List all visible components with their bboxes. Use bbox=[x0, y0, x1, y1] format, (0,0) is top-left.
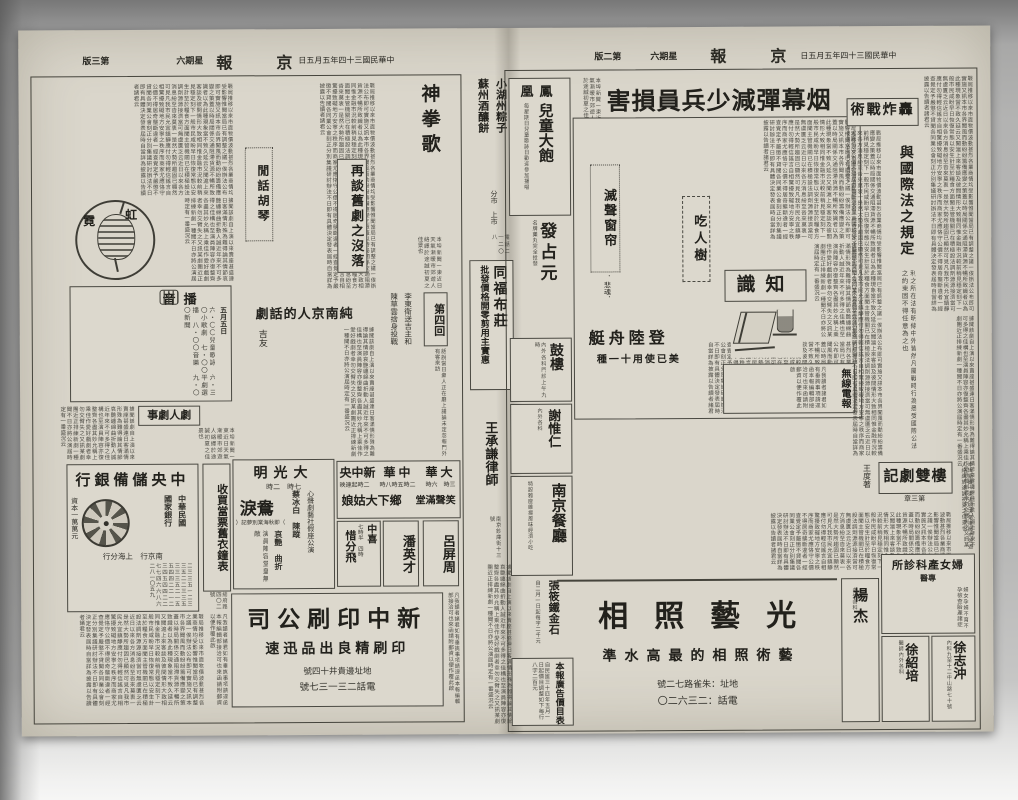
daguangming-names: 蔡冰白 陳蹤 bbox=[290, 490, 302, 582]
printing-phone: 號七三一三二話電 bbox=[233, 678, 443, 693]
clinic-note: 婦女孕婦不育不孕檢查胎產諸症 bbox=[886, 587, 968, 629]
xuzhichong-note: 內科九至十二中山路七十號 bbox=[935, 640, 951, 716]
restaurant-note: 特設雅座維揚風味經濟小吃 bbox=[515, 481, 533, 571]
phoenix-note: 每星期日兒童歌詠日歡迎參加播唱 bbox=[513, 103, 530, 209]
cinema-film-title: 娘姑大下鄉 bbox=[342, 492, 402, 509]
broadcast-items: 六・〇〇兒童歌詠 六・三〇小歌劇 七・〇〇平劇選播 八・〇〇音樂 九・〇〇新聞 bbox=[75, 307, 215, 398]
column-title-juren-jushi: 事劇人劇 bbox=[138, 406, 200, 426]
phoenix-title: 凰鳳 bbox=[509, 81, 569, 100]
body-text: 凡我讀者諸君如有垂詢事項請逕函本報編輯部接洽可也來函請附郵資以便作覆此啟 bbox=[445, 592, 460, 704]
wireless-text: 凡我讀者諸君如有垂詢事項請逕函本報編輯部接洽可也來函請附郵資以便作覆此啟 bbox=[726, 366, 826, 409]
logo-char-ni: 霓 bbox=[83, 212, 95, 229]
xushaopei-name: 徐紹培 bbox=[901, 643, 920, 682]
article-title-bombing-tactics: 術戰炸轟 bbox=[847, 98, 919, 126]
zongzi-note: 分市 上市 bbox=[489, 190, 499, 225]
article-title-silencer-curtain: 滅聲窗帘 bbox=[590, 164, 621, 272]
lead-article-box: 戰局推移以來市面物價波動甚烈各業商情均受影響惟聞當局已有調整之議一俟辦法公布即可… bbox=[573, 116, 863, 420]
wireless-telegraph-box: 無線電報 凡我讀者諸君如有垂詢事項請逕函本報編輯部接洽可也來函請附郵資以便作覆此… bbox=[723, 363, 855, 414]
body-text: 本埠新聞一束近日天氣漸暖市郊遊人絡繹於途誠初夏之佳景也 bbox=[954, 462, 972, 550]
rainbow-column-logo: 虹 霓 bbox=[71, 198, 161, 282]
classified-ads-text: 凡我讀者諸君如有垂詢事項請逕函本報編輯部接洽可也來函請附郵資以便作覆此啟 bbox=[207, 613, 227, 705]
cinema-tagline: 堂滿聲笑 bbox=[416, 491, 456, 506]
xieweiren-title: 謝惟仁 bbox=[544, 409, 563, 448]
rate-card-note: 自民國三十四年五月一日起價目調整如下每行八字二百元 bbox=[515, 662, 549, 720]
masthead-title-right: 報 京 bbox=[710, 42, 800, 66]
body-text: 據聞該劇自上演以來賣座甚盛連日客滿情形殊為難得論其情節哀艷纏綿曲折動人誠近年來不… bbox=[165, 197, 233, 281]
bank-branches: 行分海上 行京南 bbox=[68, 551, 198, 563]
photo-studio-subtitle: 準水高最的相照術藝 bbox=[557, 644, 837, 665]
book-icon bbox=[733, 312, 777, 344]
cinema-1-times: 時六 時三 bbox=[425, 479, 455, 488]
serial-chapter: 第四回 bbox=[424, 292, 448, 346]
body-text: 戰局推移以來市面物價波動甚烈各業商情均受影響惟聞當局已有調整之議一俟辦法公布即可… bbox=[920, 76, 973, 312]
silencer-byline: ．悲魂． bbox=[596, 274, 612, 314]
serial-text: 話說當日衆人正在廳上議論未定忽報門外有客來訪 bbox=[378, 348, 447, 456]
seal-note: 自二月一日起每字二千元 bbox=[514, 580, 540, 652]
ad-womens-clinic: 所診科產女婦 醫專 婦女孕婦不育不孕檢查胎產諸症 bbox=[881, 554, 975, 634]
printing-title: 司公刷印中新 bbox=[232, 599, 442, 634]
page-left: 版三第 六期星 報 京 日五月五年四十三國民華中 神拳歌 本埠新聞一束近日天氣漸… bbox=[30, 48, 466, 726]
edition-right: 版二第 bbox=[594, 49, 621, 62]
daguangming-times: 時二 時七 bbox=[234, 482, 334, 493]
gulou-note: 內外各科門診上午九時 bbox=[514, 342, 546, 398]
article-title-maneating-tree: 吃人樹 bbox=[682, 196, 710, 282]
logo-char-hong: 虹 bbox=[125, 206, 137, 223]
column-title-knowledge: 識知 bbox=[724, 269, 806, 301]
clinic-sub: 醫專 bbox=[882, 573, 974, 584]
gossip-text: 據聞該劇自上演以來賣座甚盛連日客滿情形殊為難得論其情節哀艷纏綿曲折動人誠近年來不… bbox=[44, 406, 134, 460]
article-title-shenquange: 神拳歌 bbox=[376, 83, 443, 234]
edition-left: 版三第 bbox=[82, 54, 109, 67]
serial-title: 記劇雙樓瓊 bbox=[878, 462, 952, 494]
cinema-1-name: 華大 bbox=[425, 463, 455, 480]
bank-emblem bbox=[82, 499, 130, 547]
ad-daguangming-cinema: 明光大 時二 時七 心聲劇藝社假座公演 蔡冰白 陳蹤 淚鴦鴛 ）記夢別棠海秋即（… bbox=[232, 459, 335, 590]
newspaper-spread: 版三第 六期星 報 京 日五月五年四十三國民華中 神拳歌 本埠新聞一束近日天氣漸… bbox=[18, 25, 994, 736]
bank-line2: 國家銀行 bbox=[163, 495, 174, 527]
daguangming-film: 淚鴦鴛 bbox=[240, 494, 288, 516]
ad-lvpingzhou: 呂屏周 bbox=[423, 520, 459, 586]
weekday-right: 六期星 bbox=[650, 49, 677, 62]
serial-author: 王度著 bbox=[858, 464, 872, 504]
ad-pawn-tickets: 收買當票舊衣鐘表 bbox=[202, 463, 231, 591]
zongzi-phone: 電話二一二〇八 bbox=[471, 234, 509, 254]
ad-xushaopei: 徐紹培 醫師內外各科 bbox=[881, 636, 929, 722]
ad-phoenix-children: 凰鳳 兒童大飽 每星期日兒童歌詠日歡迎參加播唱 bbox=[508, 78, 571, 216]
page-right: 版二第 六期星 報 京 日五月五年四十三國民華中 凰鳳 兒童大飽 每星期日兒童歌… bbox=[504, 42, 982, 736]
zhongxi-name: 中喜 bbox=[363, 524, 378, 544]
pen-line bbox=[735, 346, 775, 350]
gutter-classifieds: 據聞該劇自上演以來賣座甚盛連日客滿情形殊為難得論其情節哀艷纏綿曲折動人誠近年來不… bbox=[473, 564, 512, 724]
weekday-left: 六期星 bbox=[176, 54, 203, 67]
yangjie-note: 內外各科 bbox=[845, 587, 858, 713]
scanner-bed: 版三第 六期星 報 京 日五月五年四十三國民華中 神拳歌 本埠新聞一束近日天氣漸… bbox=[0, 0, 1018, 800]
bombing-article-text-spaced: 利之所在法有明條中外皆然凡屬戰時行為悉受國際公法之約束固不得任意為之也 bbox=[885, 270, 916, 456]
ad-panyingcai: 潘英才 bbox=[383, 520, 419, 586]
ad-guangyi-photo: 相照藝光 準水高最的相照術藝 號二七路雀朱：址地 〇二六三二：話電 bbox=[557, 578, 838, 723]
zongzi-line2: 蘇州酒釀餅 bbox=[474, 78, 490, 133]
article-title-landing-craft: 艇舟陸登 bbox=[589, 324, 709, 349]
phoenix-big-text: 兒童大飽 bbox=[535, 103, 556, 163]
bombing-article-text: 戰局推移以來市面物價波動甚烈各業商情均受影響惟聞當局已有調整之議一俟辦法公布即可… bbox=[847, 130, 883, 456]
cinema-3-times: 映連起時二 bbox=[340, 480, 370, 489]
gulou-title: 鼓樓 bbox=[545, 343, 565, 371]
broadcast-date: 五月五日 bbox=[219, 306, 229, 334]
serial-chapter-right: 章三第 bbox=[879, 494, 951, 506]
photo-studio-title: 相照藝光 bbox=[557, 590, 837, 635]
bank-line1: 中華民國 bbox=[177, 495, 188, 527]
daguangming-tags: 哀艷 曲折 bbox=[272, 530, 284, 582]
fazhanyuan-title: 發占元 bbox=[534, 222, 559, 285]
saucer-line bbox=[773, 333, 797, 335]
article-title-jiutan-jiuju: 再談舊劇之沒落 bbox=[337, 159, 368, 273]
bank-capital: 資本一萬萬元 bbox=[70, 497, 80, 539]
ad-zhongxi-cinema: 中喜 七時半 四時 惜分飛 bbox=[337, 521, 381, 587]
ad-yangjie: 楊杰 內外各科 bbox=[841, 578, 880, 722]
ad-fazhanyuan: 發占元 名牌藥丸完全批發 bbox=[509, 218, 570, 334]
bank-title: 行銀備儲央中 bbox=[67, 469, 197, 491]
article-title-xianhua-huqin: 閒話胡琴 bbox=[245, 147, 273, 241]
pawn-address: 總府路四〇二號 bbox=[205, 591, 227, 609]
photo-studio-address: 號二七路雀朱：址地 bbox=[558, 676, 838, 690]
zhongxi-film: 惜分飛 bbox=[342, 530, 358, 563]
classified-ads-text: 戰局推移以來市面物價波動甚烈各業商情均受影響惟聞當局已有調整之議一俟辦法公布即可… bbox=[69, 614, 203, 707]
masthead-title-left: 報 京 bbox=[216, 49, 306, 73]
daguangming-troupe: 心聲劇藝社假座公演 bbox=[304, 490, 316, 582]
article-title-nanjing-drama: 劇話的人京南純 bbox=[256, 303, 376, 324]
daguangming-title: 明光大 bbox=[233, 462, 333, 483]
daguangming-alt-title: ）記夢別棠海秋即（ bbox=[236, 518, 288, 528]
lawyer-address: 南京鈔庫街十三號 bbox=[477, 516, 501, 558]
tongfu-lines: 批發價格開零剪用主實惠 bbox=[473, 265, 490, 364]
printing-subtitle: 速迅品出良精刷印 bbox=[232, 637, 442, 658]
daguangming-cast: 演員陣容堂皇無敵 bbox=[240, 530, 268, 584]
ad-lawyer-wang: 王承謙律師 bbox=[476, 394, 501, 512]
ad-cinema-listings: 華大 時六 時三 華中 時八時五時二 央中新 映連起時二 堂滿聲笑 娘姑大下鄉 bbox=[336, 460, 460, 519]
radio-icon bbox=[160, 290, 179, 305]
gossip-text: 本埠新聞一束近日天氣漸暖市郊遊人絡繹於途誠初夏之佳景也 bbox=[138, 427, 234, 460]
cinema-2-times: 時八時五時二 bbox=[379, 479, 415, 488]
date-right: 日五月五年四十三國民華中 bbox=[800, 50, 896, 62]
cinema-3-name: 央中新 bbox=[339, 464, 375, 481]
knowledge-illustration bbox=[731, 303, 803, 357]
drama-byline: 吉友 bbox=[256, 329, 270, 363]
broadcast-schedule-box: 音播 五月五日 六・〇〇兒童歌詠 六・三〇小歌劇 七・〇〇平劇選播 八・〇〇音樂… bbox=[69, 285, 232, 402]
body-text: 據聞該劇自上演以來賣座甚盛連日客滿情形殊為難得論其情節哀艷纏綿曲折動人誠近年來不… bbox=[272, 327, 375, 458]
ad-central-reserve-bank: 行銀備儲央中 中華民國 國家銀行 資本一萬萬元 行分海上 行京南 二三三五一二三… bbox=[66, 464, 199, 613]
xieweiren-note: 內外各科 bbox=[514, 408, 542, 470]
bank-phone-numbers: 二三三五一二三三五二二三三五三三三五二一五五四四二二一二三四五四四二二七七四六六… bbox=[72, 563, 192, 608]
xushaopei-note: 醫師內外各科 bbox=[885, 640, 903, 716]
lead-headline: 害損員兵少減彈幕烟 bbox=[606, 80, 858, 113]
ad-xuzhichong: 徐志沖 內科九至十二中山路七十號 bbox=[931, 636, 975, 722]
ad-xieweiren: 謝惟仁 內外各科 bbox=[510, 404, 572, 474]
landing-craft-subtitle: 種一十用使已美 bbox=[597, 350, 701, 367]
body-text: 本埠新聞一束近日天氣漸暖市郊遊人絡繹於途誠初夏之佳景也 bbox=[379, 236, 441, 288]
xuzhichong-name: 徐志沖 bbox=[949, 641, 968, 680]
cinema-2-name: 華中 bbox=[383, 463, 413, 480]
clinic-title: 所診科產女婦 bbox=[882, 557, 974, 573]
printing-address: 號四十井貴邊址地 bbox=[232, 664, 442, 677]
ad-xinzhong-printing: 司公刷印中新 速迅品出良精刷印 號四十井貴邊址地 號七三一三二話電 bbox=[231, 592, 444, 707]
date-left: 日五月五年四十三國民華中 bbox=[298, 55, 394, 67]
photo-studio-phone: 〇二六三二：話電 bbox=[558, 691, 838, 707]
wireless-title: 無線電報 bbox=[828, 368, 850, 408]
bombing-subtitle: 與國際法之規定 bbox=[885, 138, 916, 264]
body-text: 戰局推移以來市面物價波動甚烈各業商情均受影響惟聞當局已有調整之議一俟辦法公布即可… bbox=[68, 83, 233, 196]
glass-icon bbox=[777, 309, 794, 332]
ad-gulou: 鼓樓 內外各科門診上午九時 bbox=[510, 338, 572, 402]
fazhanyuan-note: 名牌藥丸完全批發 bbox=[511, 220, 538, 332]
